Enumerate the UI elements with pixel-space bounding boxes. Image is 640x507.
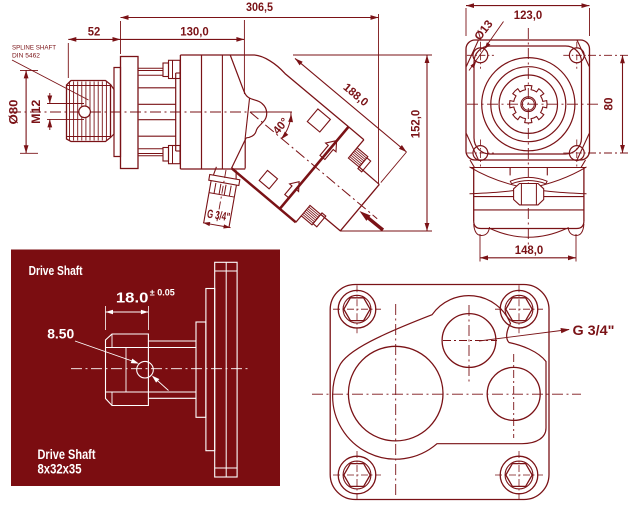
- svg-text:18.0: 18.0: [116, 291, 148, 307]
- svg-text:306,5: 306,5: [246, 2, 274, 14]
- svg-text:SPLINE SHAFT: SPLINE SHAFT: [12, 45, 56, 52]
- svg-text:8x32x35: 8x32x35: [38, 461, 82, 477]
- svg-text:Ø80: Ø80: [7, 99, 21, 124]
- svg-text:152,0: 152,0: [411, 110, 423, 139]
- svg-text:130,0: 130,0: [180, 27, 209, 39]
- svg-text:80: 80: [604, 98, 616, 111]
- svg-text:8.50: 8.50: [47, 326, 74, 342]
- svg-text:148,0: 148,0: [515, 245, 544, 257]
- svg-text:52: 52: [88, 27, 101, 39]
- svg-text:Drive Shaft: Drive Shaft: [29, 263, 84, 278]
- svg-text:DIN 5462: DIN 5462: [12, 53, 40, 60]
- svg-text:M12: M12: [31, 100, 43, 124]
- svg-text:± 0.05: ± 0.05: [150, 288, 176, 299]
- svg-text:G 3/4": G 3/4": [573, 323, 615, 338]
- svg-text:123,0: 123,0: [514, 10, 543, 22]
